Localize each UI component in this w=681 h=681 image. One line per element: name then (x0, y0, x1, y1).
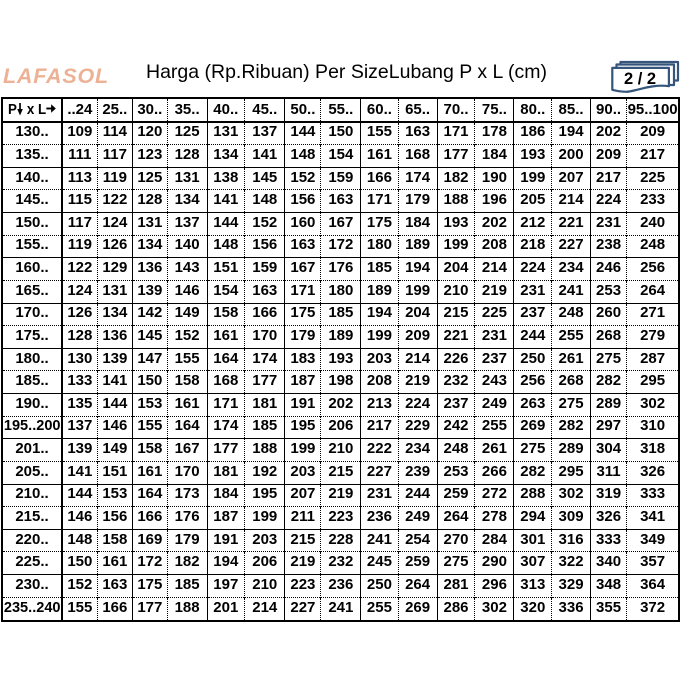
svg-text:2 / 2: 2 / 2 (624, 70, 656, 88)
